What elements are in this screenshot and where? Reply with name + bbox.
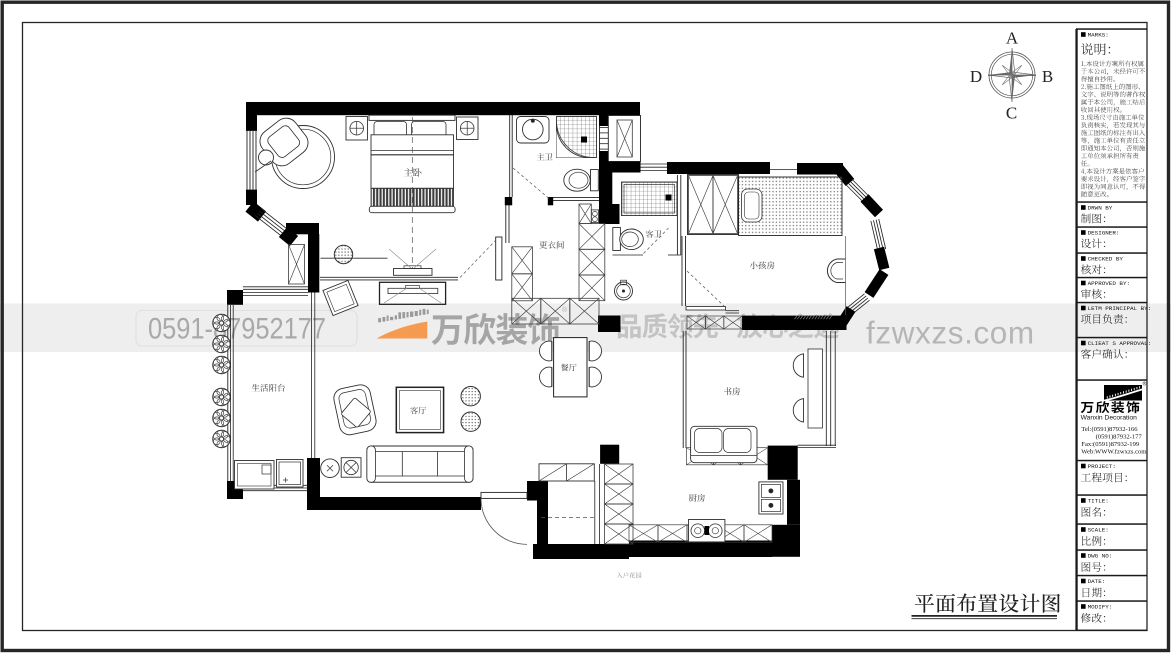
- svg-text:C: C: [1006, 104, 1017, 123]
- svg-text:DRWN BY: DRWN BY: [1088, 205, 1113, 212]
- svg-text:®: ®: [1143, 380, 1147, 387]
- svg-text:D: D: [970, 67, 982, 86]
- svg-text:SCALE:: SCALE:: [1088, 527, 1109, 534]
- svg-text:PROJECT:: PROJECT:: [1088, 463, 1116, 470]
- svg-text:B: B: [1042, 67, 1053, 86]
- svg-text:®: ®: [562, 306, 568, 314]
- svg-text:0591-87952177: 0591-87952177: [148, 313, 326, 346]
- svg-text:MODIFY:: MODIFY:: [1088, 604, 1113, 611]
- svg-text:TITLE:: TITLE:: [1088, 498, 1109, 505]
- svg-text:Tel:(0591)87932-166: Tel:(0591)87932-166: [1081, 426, 1138, 433]
- svg-text:APPROVED BY:: APPROVED BY:: [1088, 280, 1130, 287]
- svg-text:fzwxzs.com: fzwxzs.com: [866, 315, 1035, 351]
- svg-text:DATE:: DATE:: [1088, 578, 1106, 585]
- svg-text:MARKS:: MARKS:: [1088, 32, 1109, 39]
- svg-text:CLIEAT S APPROVAL:: CLIEAT S APPROVAL:: [1088, 340, 1152, 347]
- svg-text:LETM PRINCIPAL BY:: LETM PRINCIPAL BY:: [1088, 305, 1152, 312]
- svg-text:(0591)87932-177: (0591)87932-177: [1096, 434, 1143, 441]
- svg-text:A: A: [1006, 29, 1019, 48]
- svg-text:Wanxin Decoration: Wanxin Decoration: [1081, 414, 1138, 421]
- svg-text:Web:WWW.fzwxzs.com: Web:WWW.fzwxzs.com: [1081, 449, 1147, 456]
- svg-text:DWG NO:: DWG NO:: [1088, 553, 1113, 560]
- svg-text:CHECKED BY: CHECKED BY: [1088, 256, 1124, 263]
- svg-text:Fax:(0591)87932-199: Fax:(0591)87932-199: [1081, 441, 1140, 448]
- svg-text:DESIGNER:: DESIGNER:: [1088, 230, 1120, 237]
